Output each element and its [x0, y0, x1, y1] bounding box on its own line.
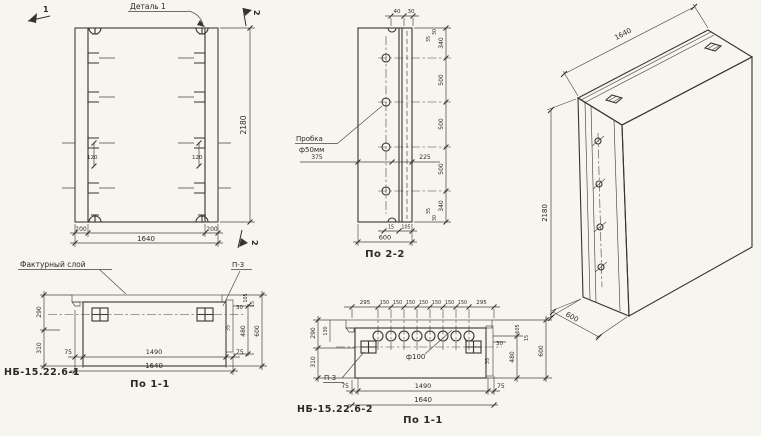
dim-75-left: 75 [64, 349, 72, 356]
s11a-left-dims: 290 310 [36, 291, 83, 370]
dim-15: 15 [250, 301, 256, 307]
dim-75-right: 75 [497, 383, 505, 390]
section-1-1-title-a: По 1-1 [130, 379, 170, 390]
dim-30-b: 30 [432, 215, 438, 221]
left-column-rib [75, 28, 88, 222]
dim-310: 310 [36, 342, 43, 354]
dim-1640: 1640 [414, 396, 432, 404]
dim-600: 600 [254, 325, 261, 337]
s22-right-chain: 30 35 340 500 500 500 340 35 30 [414, 26, 451, 225]
section-2-2-title: По 2-2 [365, 249, 405, 260]
plug-label-2: ф50мм [299, 146, 324, 154]
section-1-1-view-a: Фактурный слой П-3 290 310 [4, 260, 267, 390]
dim-120-right: 120 [192, 155, 203, 161]
detail-ref: П-3 [232, 261, 244, 269]
dim-150: 150 [419, 300, 428, 306]
dim-150: 150 [445, 300, 454, 306]
factured-layer-strip [72, 295, 222, 302]
plug-label-1: Пробка [296, 135, 323, 143]
dim-500-b: 500 [438, 118, 445, 130]
dim-340-top: 340 [438, 37, 445, 49]
iso-lifting-loop-icon [606, 43, 721, 103]
dim-120-left: 120 [87, 155, 98, 161]
dim-1640: 1640 [145, 362, 163, 370]
s11b-bottom-dims: 75 1490 75 1640 [341, 376, 504, 408]
dim-105: 105 [401, 225, 410, 231]
panel-front-face [622, 57, 752, 316]
dim-295-right: 295 [476, 300, 487, 306]
dim-150: 150 [380, 300, 389, 306]
section-outline [358, 28, 412, 222]
dim-35-a: 35 [426, 36, 432, 42]
dim-310: 310 [310, 356, 317, 368]
dim-290: 290 [310, 327, 317, 339]
cut-flag-icon [28, 13, 37, 23]
anchor-bracket-icon [62, 53, 231, 193]
dim-40: 40 [394, 9, 401, 15]
factured-layer-callout: Фактурный слой [18, 260, 126, 294]
front-elevation-view: 120 120 200 200 1640 2180 Деталь 1 [28, 2, 261, 248]
iso-dims: 1640 2180 600 [541, 4, 708, 340]
factured-layer-strip [346, 320, 492, 328]
dim-200-left: 200 [75, 226, 87, 233]
dim-2180: 2180 [239, 115, 248, 134]
s22-top-dims: 40 30 [385, 9, 419, 26]
dim-150: 150 [393, 300, 402, 306]
cut-mark-1: 1 [43, 5, 49, 14]
plug-callout: Пробка ф50мм [295, 106, 382, 154]
s11b-right-dims: 30 35 105 15 480 600 [485, 316, 552, 382]
panel-top-face [578, 30, 752, 125]
dim-500-c: 500 [438, 163, 445, 175]
dim-15: 15 [388, 225, 394, 231]
dim-480: 480 [240, 325, 247, 337]
dim-rib-35: 35 [226, 325, 232, 331]
iso-dim-1640: 1640 [613, 27, 633, 42]
dim-105: 105 [515, 324, 521, 333]
dim-130: 130 [323, 326, 329, 335]
s22-bottom-dims: 15 105 600 [353, 224, 417, 246]
dim-rib-35: 35 [485, 358, 491, 364]
dim-15: 15 [524, 335, 530, 341]
s11b-left-dims: 290 310 130 [310, 316, 355, 382]
cut-mark-2-bottom: 2 [250, 240, 259, 246]
drawing-sheet: 120 120 200 200 1640 2180 Деталь 1 [0, 0, 761, 436]
dim-75-right: 75 [236, 349, 244, 356]
section-cut-1-flag: 1 [28, 5, 50, 23]
hole-callout: ф100 [406, 330, 452, 361]
isometric-view: 1640 2180 600 [541, 4, 752, 340]
dim-1490: 1490 [415, 382, 432, 390]
s22-mid-dims: 375 225 [300, 154, 440, 165]
dim-375: 375 [311, 154, 323, 161]
dim-290: 290 [36, 306, 43, 318]
section-cut-2-flag-top: 2 [243, 8, 261, 26]
right-column-rib [205, 28, 218, 222]
dim-rib-30: 30 [496, 341, 503, 347]
panel-code-1: НБ-15.22.6-1 [4, 367, 80, 378]
dim-rib-30: 30 [236, 305, 243, 311]
dim-200-right: 200 [206, 226, 218, 233]
dim-150: 150 [406, 300, 415, 306]
dim-105: 105 [243, 293, 249, 302]
dim-295-left: 295 [360, 300, 371, 306]
front-bottom-dims: 200 200 1640 [70, 224, 223, 247]
layer-step [346, 328, 354, 332]
dim-600: 600 [538, 345, 545, 357]
dim-150: 150 [432, 300, 441, 306]
hole-label: ф100 [406, 353, 425, 361]
panel-code-2: НБ-15.22.6-2 [297, 404, 373, 415]
dim-1490: 1490 [146, 348, 163, 356]
section-1-1-title-b: По 1-1 [403, 415, 443, 426]
dim-225: 225 [419, 154, 431, 161]
round-holes [373, 331, 474, 341]
dim-30-a: 30 [432, 29, 438, 35]
edge-rib [486, 326, 493, 376]
detail-label: Деталь 1 [130, 2, 166, 11]
dim-35-b: 35 [426, 208, 432, 214]
cut-mark-2-top: 2 [252, 10, 261, 16]
iso-dim-2180: 2180 [541, 204, 549, 222]
s11a-right-dims: 30 35 105 15 480 600 [222, 291, 267, 370]
leader-arrow-icon [197, 20, 205, 27]
section-1-1-view-b: 295 150 150 150 150 150 150 150 295 [297, 300, 552, 426]
lifting-loop-icon [89, 28, 208, 222]
iso-plug-holes [592, 136, 607, 272]
dim-500-a: 500 [438, 74, 445, 86]
section-cut-2-flag-bottom: 2 [238, 230, 259, 248]
dim-600: 600 [379, 234, 391, 242]
dim-1640-width: 1640 [137, 235, 155, 243]
dim-75-left: 75 [341, 383, 349, 390]
panel-drawing: 120 120 200 200 1640 2180 Деталь 1 [0, 0, 761, 436]
dim-30-top: 30 [408, 9, 415, 15]
s11a-bottom-dims: 75 1490 75 1640 [64, 310, 243, 375]
section-2-2-view: 40 30 30 35 340 500 500 500 340 35 30 37… [295, 9, 451, 260]
dim-340-bottom: 340 [438, 200, 445, 212]
layer-label: Фактурный слой [20, 260, 86, 269]
anchor-offset-dim: 120 120 [87, 141, 203, 169]
detail-callout: Деталь 1 [128, 2, 205, 27]
front-height-dim: 2180 [220, 26, 255, 225]
dim-150: 150 [458, 300, 467, 306]
s11b-top-dims: 295 150 150 150 150 150 150 150 295 [344, 300, 500, 318]
dim-480: 480 [509, 351, 516, 363]
layer-step [72, 302, 80, 306]
